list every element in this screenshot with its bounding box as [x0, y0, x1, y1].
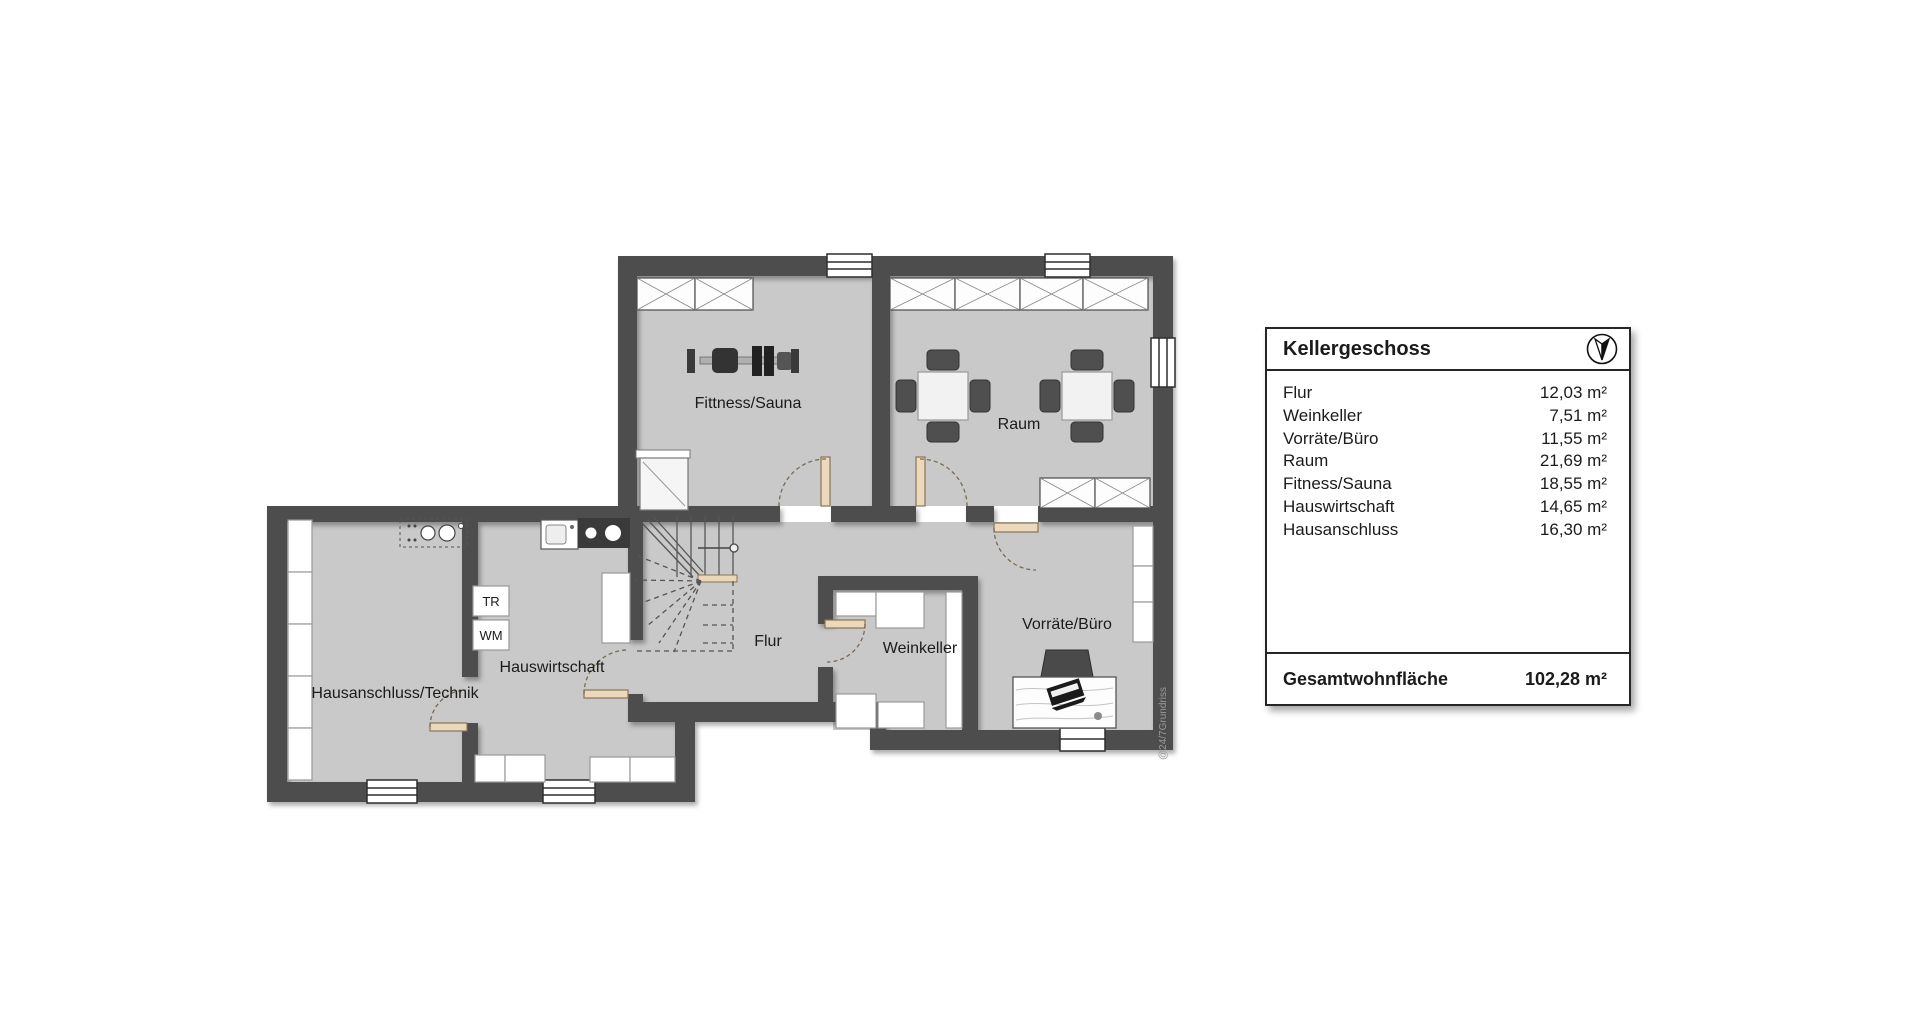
legend-row: Hausanschluss 16,30 m² — [1283, 519, 1607, 542]
floor-plan-svg: TR WM — [255, 240, 1185, 815]
vorraete-shelves — [1133, 526, 1153, 642]
legend-room-area: 16,30 m² — [1540, 519, 1607, 542]
label-weinkeller: Weinkeller — [883, 640, 958, 657]
floor-plan: TR WM — [255, 240, 1185, 815]
window-fitness-top — [827, 254, 872, 277]
washer-label: WM — [479, 628, 502, 643]
window-hausanschluss-bottom — [367, 780, 417, 803]
desk-icon — [1013, 677, 1116, 728]
cupboard-icon — [602, 573, 630, 643]
wardrobe-cabinets-raum-bottom — [1040, 478, 1150, 508]
legend-title: Kellergeschoss — [1283, 338, 1431, 361]
window-raum-top — [1045, 254, 1090, 277]
legend-row: Fitness/Sauna 18,55 m² — [1283, 473, 1607, 496]
legend-room-area: 14,65 m² — [1540, 496, 1607, 519]
label-hauswirtschaft: Hauswirtschaft — [500, 659, 605, 676]
page: { "legend": { "title": "Kellergeschoss",… — [0, 0, 1920, 1019]
window-vorraete-bottom — [1060, 728, 1105, 751]
north-arrow-icon — [1585, 332, 1619, 366]
legend-row: Weinkeller 7,51 m² — [1283, 405, 1607, 428]
legend-room-area: 7,51 m² — [1549, 405, 1607, 428]
label-vorraete-buero: Vorräte/Büro — [1022, 616, 1112, 633]
legend-spacer — [1267, 542, 1629, 652]
sink-icon — [541, 520, 578, 549]
legend-room-area: 12,03 m² — [1540, 382, 1607, 405]
window-raum-right — [1151, 338, 1175, 387]
legend-room-name: Hausanschluss — [1283, 519, 1398, 542]
legend-header: Kellergeschoss — [1267, 329, 1629, 371]
legend-box: Kellergeschoss Flur 12,03 m² Weinkeller … — [1265, 327, 1631, 706]
legend-room-area: 11,55 m² — [1541, 428, 1607, 451]
legend-room-name: Hauswirtschaft — [1283, 496, 1394, 519]
dryer-box: TR — [473, 586, 509, 616]
stair-newel-post — [730, 544, 738, 552]
label-hausanschluss: Hausanschluss/Technik — [311, 685, 479, 702]
wardrobe-cabinets-fitness — [637, 278, 753, 310]
window-hauswirtschaft-bottom — [543, 780, 595, 803]
label-fitness-sauna: Fittness/Sauna — [695, 395, 802, 412]
watermark-text: @24/7Grundriss — [1158, 687, 1169, 760]
stair-landing — [698, 575, 737, 582]
label-flur: Flur — [754, 633, 782, 650]
wardrobe-cabinets-raum — [890, 278, 1148, 310]
label-raum: Raum — [998, 416, 1041, 433]
legend-room-area: 18,55 m² — [1540, 473, 1607, 496]
counter-hob-icon — [578, 518, 630, 548]
legend-row: Hauswirtschaft 14,65 m² — [1283, 496, 1607, 519]
legend-total-area: 102,28 m² — [1525, 669, 1607, 690]
legend-room-name: Weinkeller — [1283, 405, 1362, 428]
legend-total-row: Gesamtwohnfläche 102,28 m² — [1267, 652, 1629, 704]
shower-cabin-icon — [636, 450, 690, 510]
legend-room-area: 21,69 m² — [1540, 450, 1607, 473]
legend-room-name: Raum — [1283, 450, 1328, 473]
hausanschluss-shelves — [288, 520, 312, 780]
legend-row: Vorräte/Büro 11,55 m² — [1283, 428, 1607, 451]
legend-room-name: Flur — [1283, 382, 1312, 405]
legend-row: Raum 21,69 m² — [1283, 450, 1607, 473]
legend-total-label: Gesamtwohnfläche — [1283, 669, 1448, 690]
legend-room-name: Vorräte/Büro — [1283, 428, 1378, 451]
legend-room-list: Flur 12,03 m² Weinkeller 7,51 m² Vorräte… — [1267, 371, 1629, 542]
washer-box: WM — [473, 620, 509, 650]
dryer-label: TR — [482, 594, 499, 609]
legend-row: Flur 12,03 m² — [1283, 382, 1607, 405]
legend-room-name: Fitness/Sauna — [1283, 473, 1392, 496]
